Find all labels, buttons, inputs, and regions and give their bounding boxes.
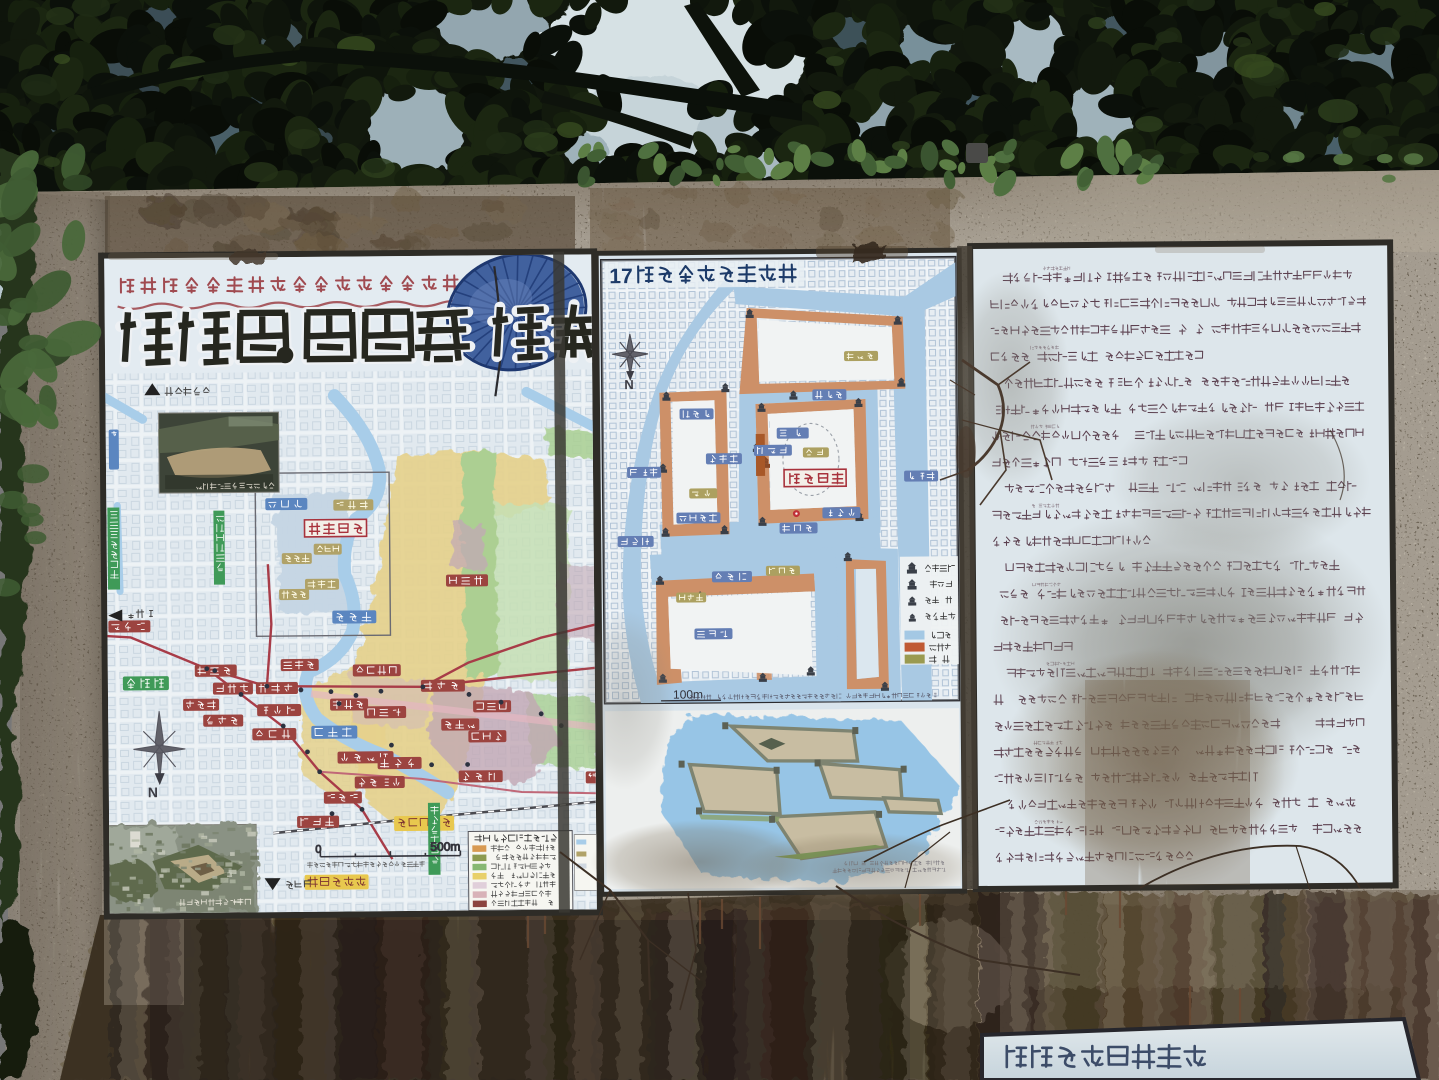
svg-text:N: N: [148, 784, 158, 800]
svg-text:N: N: [624, 377, 634, 392]
svg-text:17: 17: [609, 265, 633, 288]
svg-text:0: 0: [315, 844, 321, 856]
svg-text:500m: 500m: [430, 840, 460, 854]
